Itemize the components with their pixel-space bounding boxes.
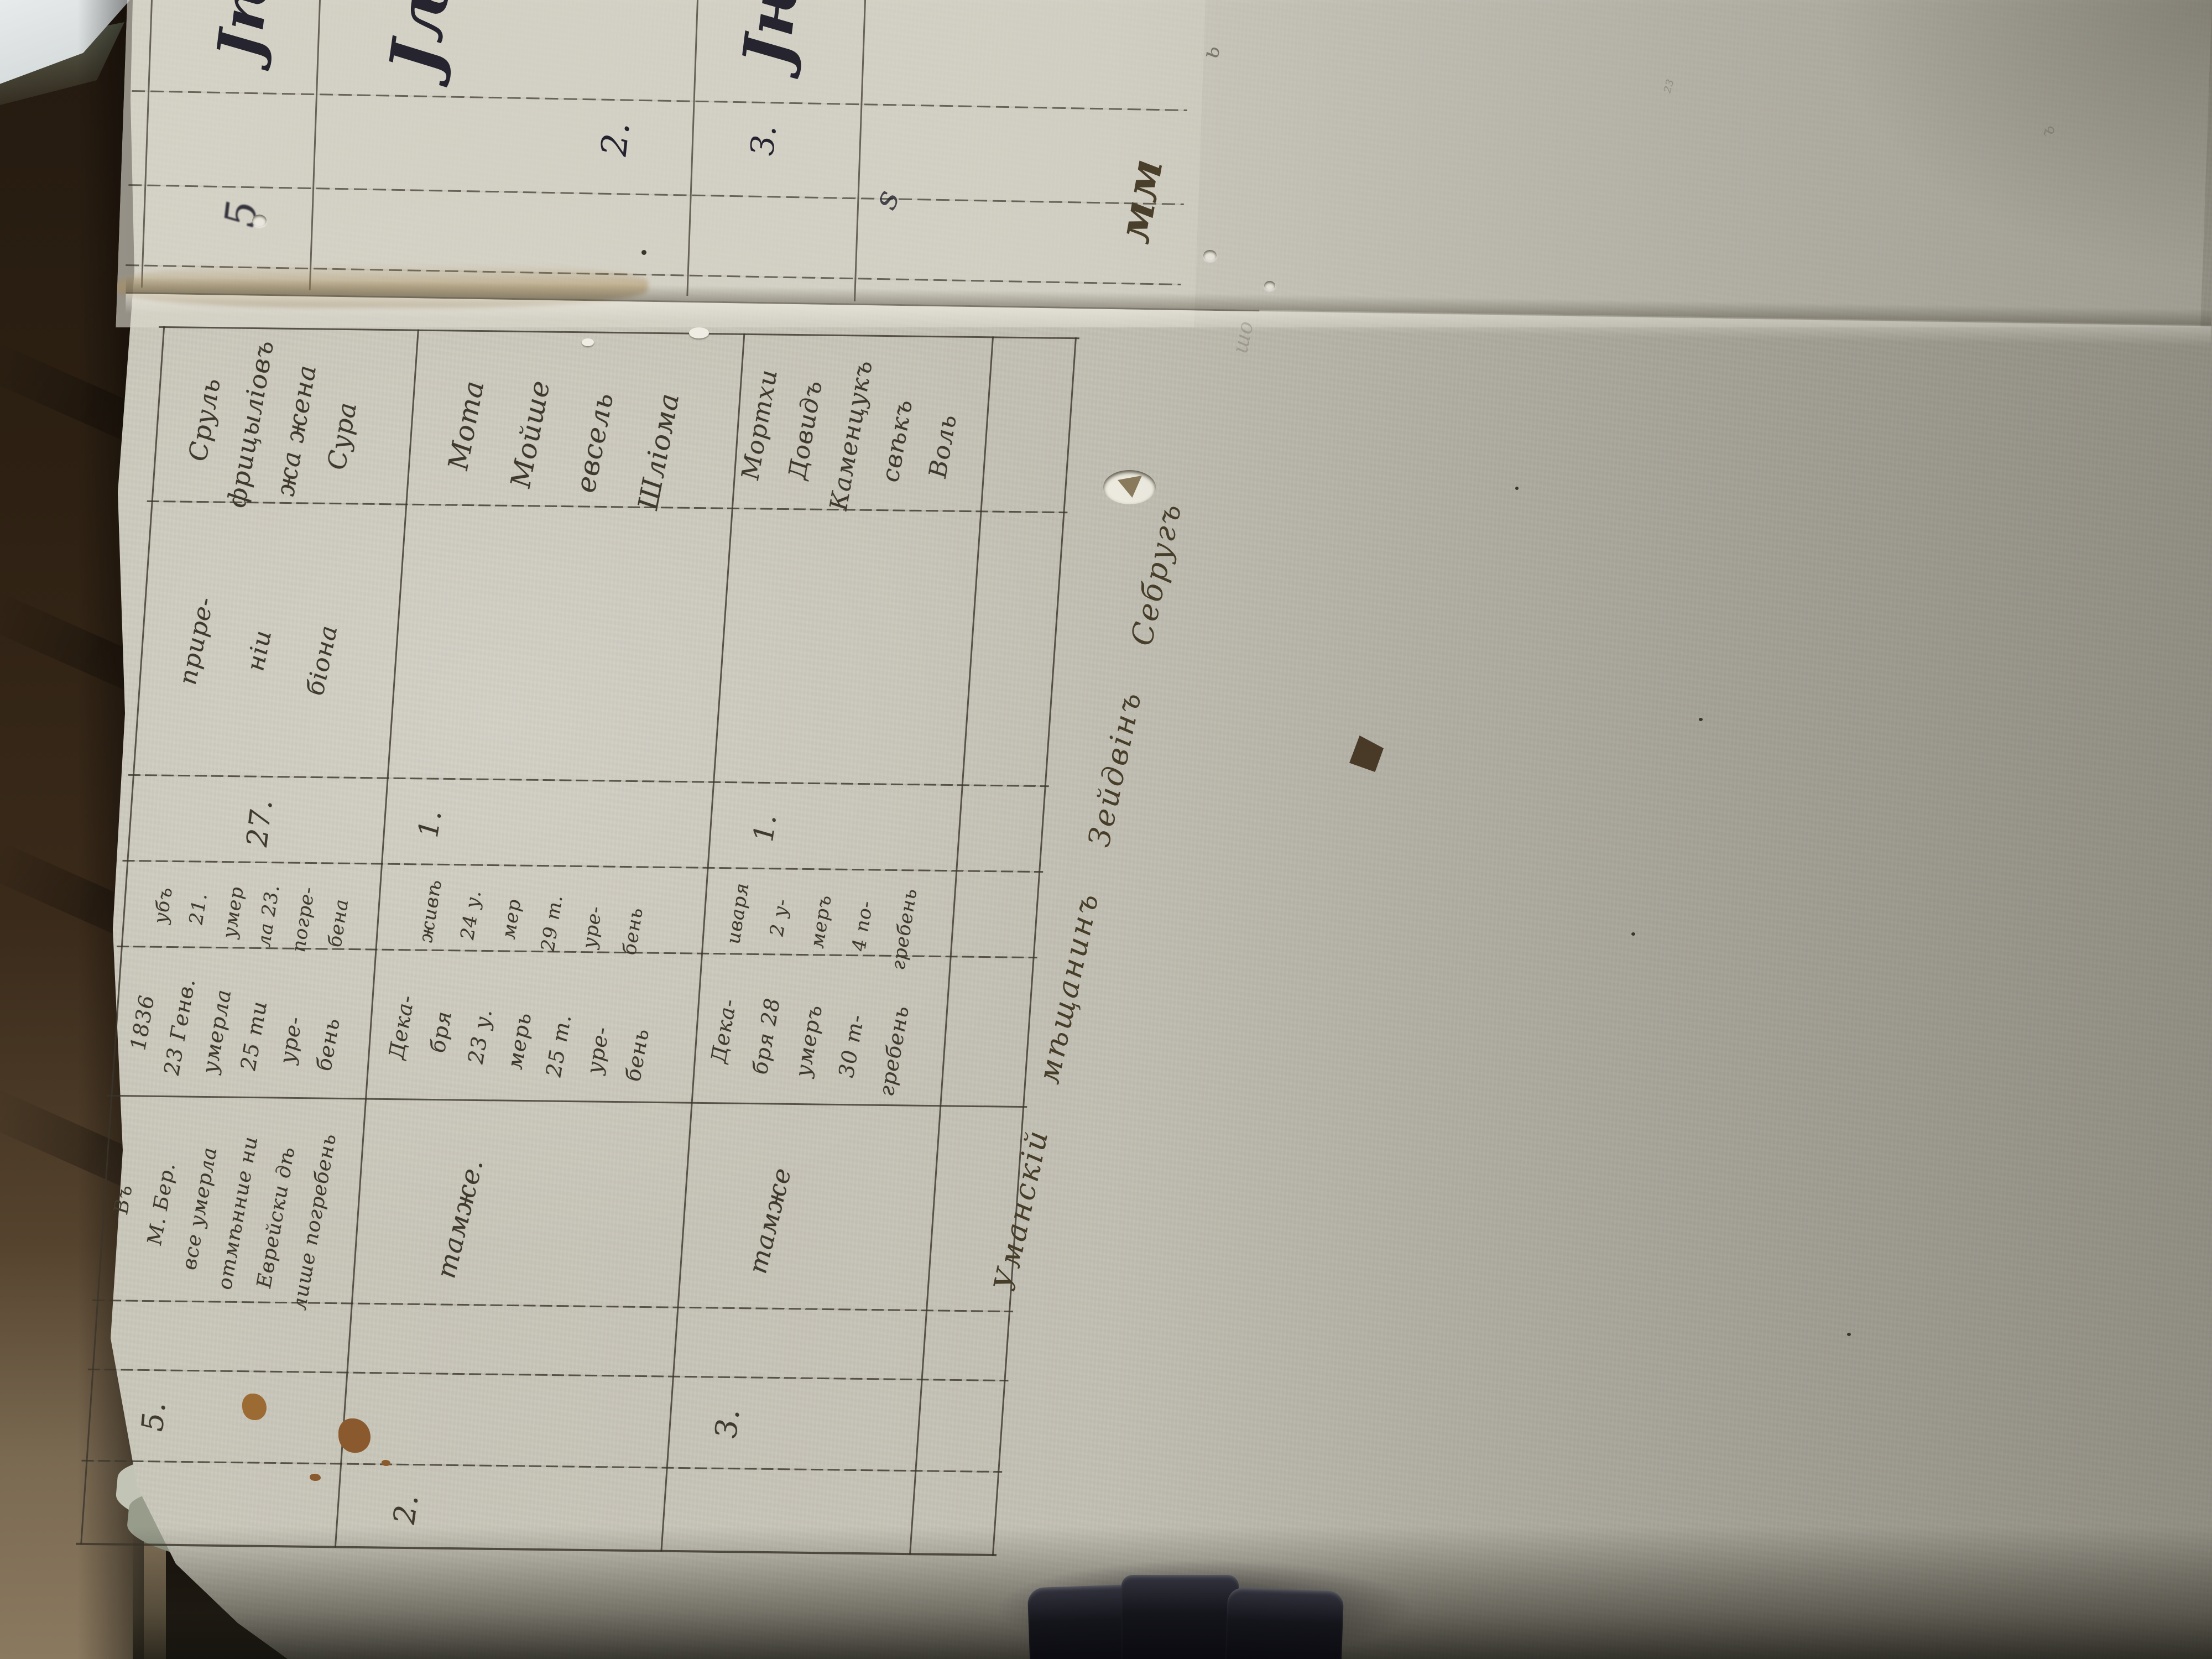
table-cell-header-count: 27. — [171, 778, 376, 860]
handwriting: Въ М. Бер. все умерла отмѣнние ни Еврейс… — [82, 1098, 364, 1325]
handwriting: Мортхи Довидъ Каменцукъ свѣкъ Воль — [717, 339, 992, 533]
table-cell-header-burial-date: убъ 21. умер ла 23. погре- бена — [138, 863, 375, 946]
table-cell-header-place: Въ М. Бер. все умерла отмѣнние ни Еврейс… — [103, 1098, 362, 1300]
cutoff-signature-flourish: Јѣ — [204, 0, 284, 62]
table-cell-header-number: 5. — [103, 1371, 247, 1459]
table-cell-header-name: Сруль фрицыліовъ жа жена Сура — [163, 332, 417, 500]
table-cell-row1-death-date: Дека- бря 23 у. мерь 25 т. уре- бень — [368, 952, 698, 1099]
paper-chip — [689, 327, 709, 338]
cutoff-signature-flourish: Јњ — [728, 0, 815, 70]
clip-body-right — [1225, 1587, 1344, 1659]
photo-of-register-page: Јѣ Јљ Јњ 2. З. 5 ѕ Сруль фрицыліов — [0, 0, 2212, 1659]
handwriting: прире- ніи біона — [132, 509, 398, 794]
paper-hole-small — [252, 215, 267, 227]
handwriting: З. — [667, 1376, 870, 1477]
row-number-previous-page: 2. — [594, 121, 638, 158]
table-cell-row2-count: 1. — [716, 784, 887, 867]
table-cell-row1-burial-date: живѣ 24 у. мер 29 т. уре- бень — [378, 866, 704, 950]
table-cell-row2-number: З. — [672, 1376, 833, 1466]
table-cell-row2-death-date: Дека- бря 28 умеръ 30 т- гребень — [691, 956, 947, 1102]
table-cell-row2-place: тамже — [694, 1108, 928, 1307]
clip-body-center — [1121, 1575, 1239, 1659]
handwriting: 1. — [710, 784, 919, 880]
row-number-previous-page: З. — [743, 124, 784, 156]
photo-vignette — [1825, 0, 2212, 276]
handwriting: Мота Мойше евсель Шліома — [391, 335, 762, 546]
ink-speck — [641, 250, 646, 255]
table-cell-row1-count: 1. — [392, 780, 564, 863]
table-cell-row2-name: Мортхи Довидъ Каменцукъ свѣкъ Воль — [734, 339, 989, 508]
handwriting: 1836 23 Генв. умерла 25 ти уре- бень — [107, 948, 371, 1119]
wax-stain — [242, 1394, 267, 1420]
register-table: Сруль фрицыліовъ жа жена Сура прире- ніи… — [79, 288, 1105, 1582]
wax-stain — [382, 1460, 390, 1466]
table-cell-header-death-date: 1836 23 Генв. умерла 25 ти уре- бень — [122, 948, 369, 1095]
table-cell-header-cause: прире- ніи біона — [166, 509, 394, 766]
handwriting: тамже — [660, 1108, 993, 1355]
handwriting: Дека- бря 28 умеръ 30 т- гребень — [676, 956, 957, 1129]
table-cell-row1-place: тамже. — [373, 1104, 663, 1303]
wax-stain — [310, 1474, 321, 1481]
table-cell-row1-name: Мота Мойше евсель Шліома — [411, 335, 740, 505]
paper-chip — [582, 338, 594, 346]
cutoff-signature-flourish: Јљ — [373, 0, 466, 77]
table-cell-row2-burial-date: иваря 2 у- меръ 4 по- гребень — [701, 870, 953, 953]
binder-clip — [1029, 1571, 1349, 1659]
